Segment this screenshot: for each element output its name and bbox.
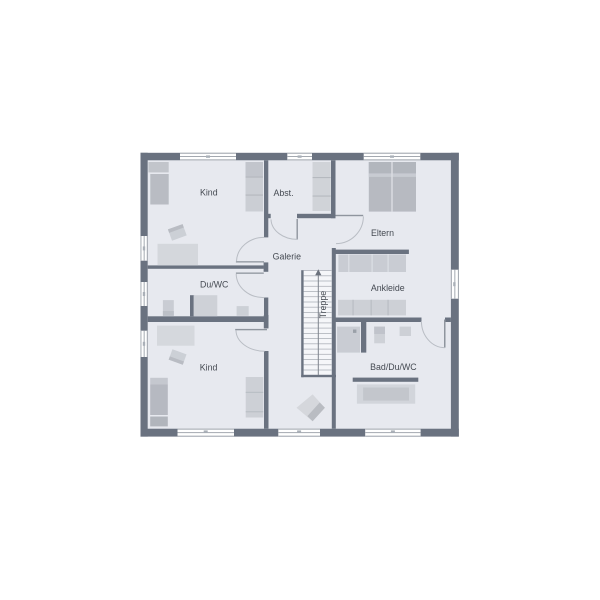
svg-text:Treppe: Treppe (318, 291, 328, 319)
svg-text:Abst.: Abst. (273, 188, 293, 198)
svg-text:Ankleide: Ankleide (371, 283, 405, 293)
svg-text:Kind: Kind (200, 362, 218, 372)
svg-text:Eltern: Eltern (371, 228, 394, 238)
svg-text:Kind: Kind (200, 188, 218, 198)
svg-text:Du/WC: Du/WC (200, 280, 229, 290)
svg-text:Galerie: Galerie (273, 252, 301, 262)
svg-text:Bad/Du/WC: Bad/Du/WC (370, 362, 417, 372)
